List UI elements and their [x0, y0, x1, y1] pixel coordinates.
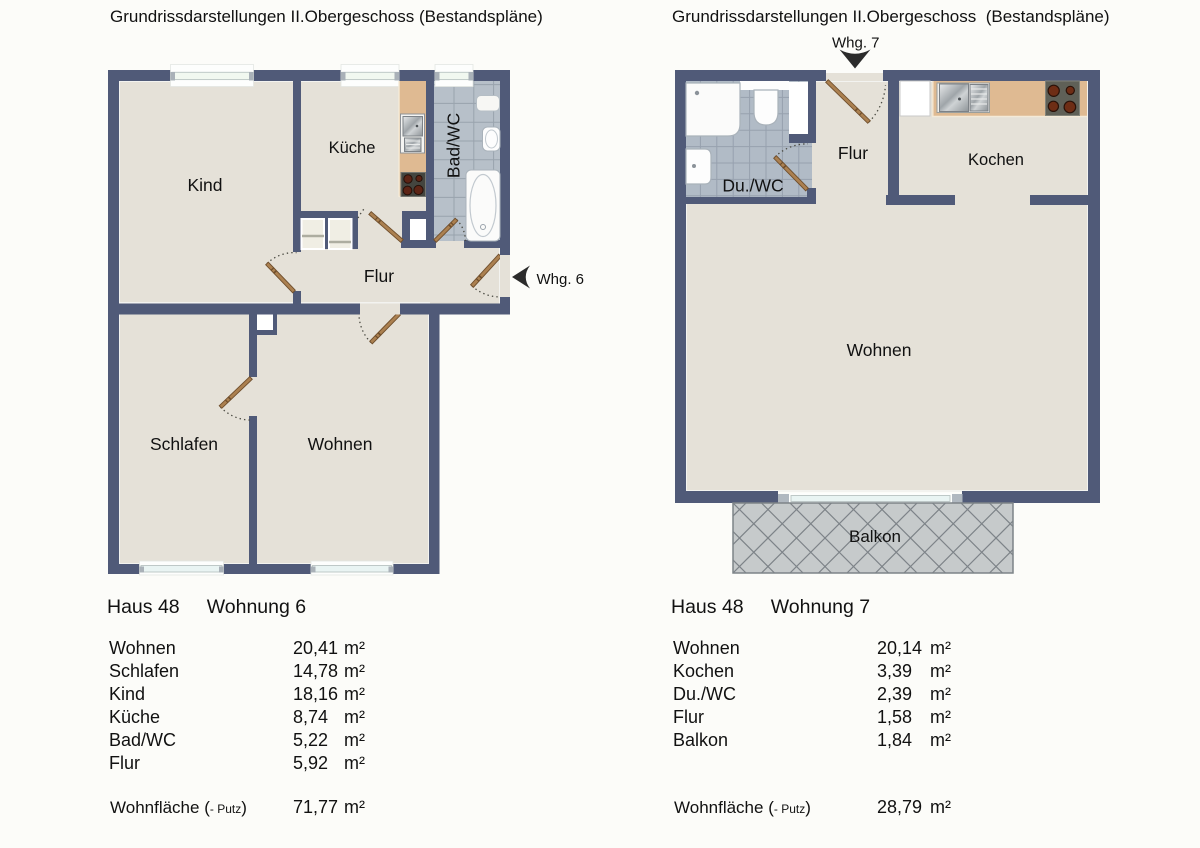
svg-text:Kochen: Kochen: [968, 151, 1024, 169]
svg-text:Küche: Küche: [329, 139, 376, 157]
svg-text:Wohnen: Wohnen: [308, 434, 373, 454]
svg-text:Kind: Kind: [187, 175, 222, 195]
svg-text:Du./WC: Du./WC: [722, 176, 783, 196]
svg-text:Balkon: Balkon: [849, 527, 901, 546]
svg-text:Flur: Flur: [364, 266, 394, 286]
svg-text:Whg. 7: Whg. 7: [832, 35, 880, 52]
svg-text:Bad/WC: Bad/WC: [444, 113, 464, 178]
svg-text:Whg. 6: Whg. 6: [537, 271, 585, 288]
svg-text:Wohnen: Wohnen: [847, 340, 912, 360]
svg-text:Flur: Flur: [838, 143, 868, 163]
svg-text:Schlafen: Schlafen: [150, 434, 218, 454]
